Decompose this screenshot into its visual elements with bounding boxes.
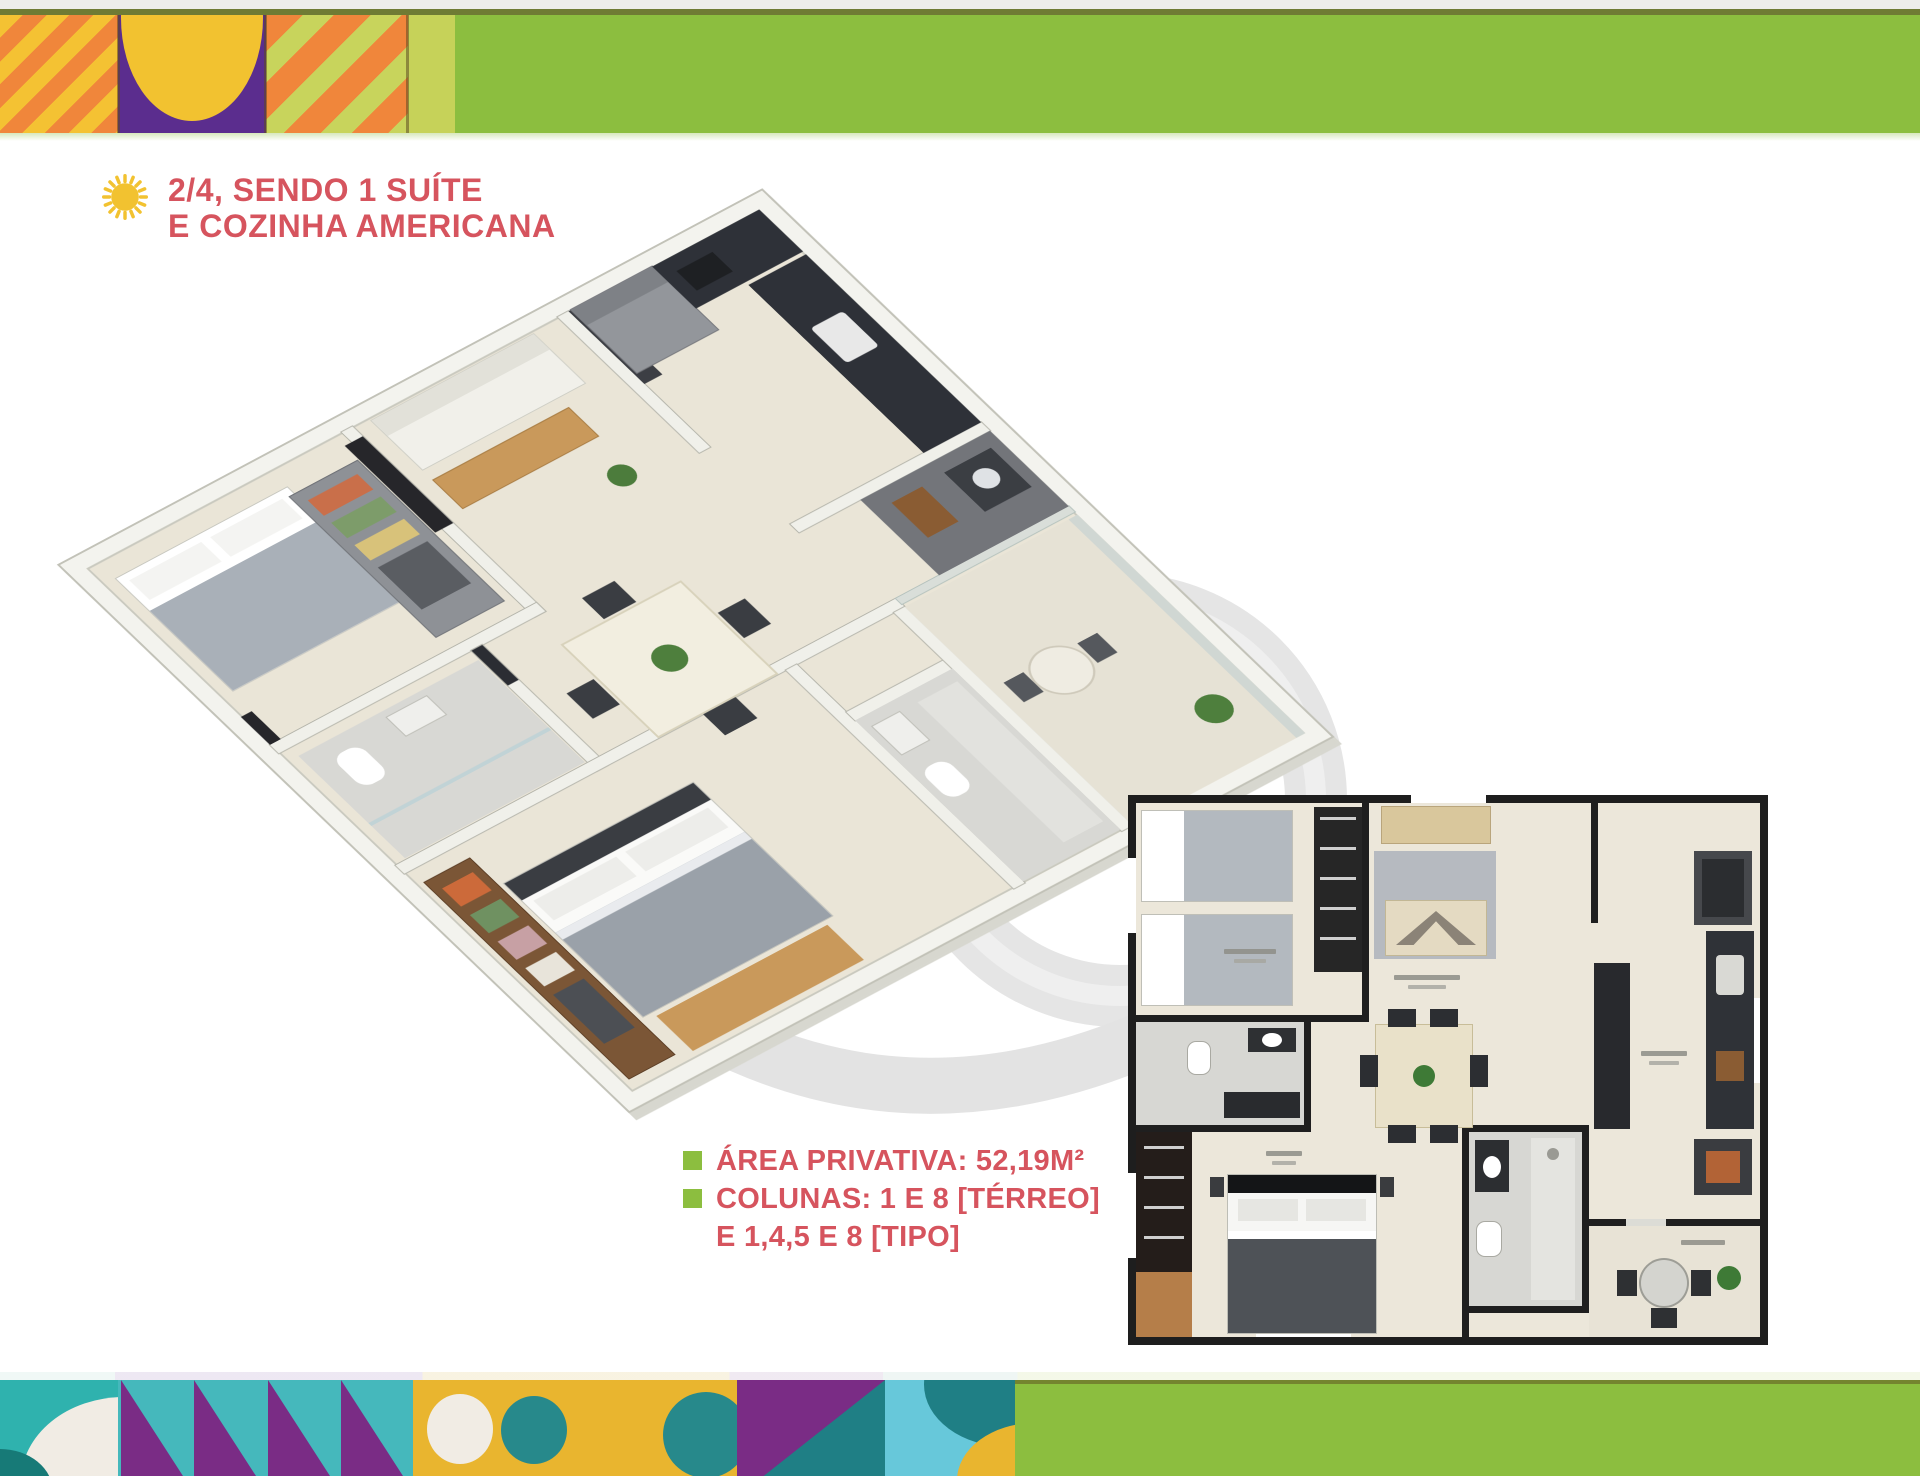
room-label-smudge	[1408, 985, 1446, 989]
spec-columns: COLUNAS: 1 E 8 [TÉRREO]	[683, 1180, 1100, 1218]
chair	[1388, 1125, 1416, 1143]
toilet	[331, 744, 390, 789]
plant	[1717, 1266, 1741, 1290]
floorplan-2d	[1128, 795, 1768, 1345]
spec-columns-line2: E 1,4,5 E 8 [TIPO]	[716, 1218, 1100, 1256]
tile-green-stripes-icon	[266, 15, 408, 133]
tile-purple-dome-icon	[118, 15, 266, 133]
wall	[1589, 1219, 1760, 1226]
window	[1411, 795, 1486, 803]
room-label-smudge	[1681, 1240, 1725, 1245]
top-decorative-banner	[0, 0, 1920, 133]
bed	[1142, 811, 1292, 901]
wood-shelf	[1136, 1272, 1192, 1337]
tile-chartreuse	[408, 15, 455, 133]
headline: 2/4, SENDO 1 SUÍTE E COZINHA AMERICANA	[102, 172, 556, 244]
headline-line2: E COZINHA AMERICANA	[168, 208, 556, 244]
chair	[1430, 1009, 1458, 1027]
fridge	[1694, 851, 1752, 925]
wood-shelf	[892, 486, 959, 537]
room-label-smudge	[1234, 959, 1266, 963]
bathroom-floor	[1136, 1022, 1304, 1125]
tile-purple-teal-diagonal-icon	[737, 1380, 885, 1476]
green-square-bullet	[683, 1189, 702, 1208]
washing-machine	[944, 448, 1032, 512]
wall	[1469, 1306, 1589, 1313]
window	[1128, 1173, 1136, 1258]
tile-teal-leaf-icon	[0, 1380, 118, 1476]
tile-gold-circles-icon	[413, 1380, 737, 1476]
tile-orange-stripes-icon	[0, 15, 118, 133]
tile-green-solid	[455, 15, 1920, 133]
suite-wardrobe	[1136, 1132, 1192, 1272]
balcony-floor	[1589, 1226, 1760, 1337]
pale-edge-strip	[0, 1372, 1920, 1380]
spec-columns-line1: COLUNAS: 1 E 8 [TÉRREO]	[716, 1180, 1100, 1218]
tile-green-solid	[1015, 1380, 1920, 1476]
chair	[1691, 1270, 1711, 1296]
wall	[1136, 1015, 1369, 1022]
room-label-smudge	[1394, 975, 1460, 980]
wardrobe	[1314, 807, 1362, 972]
spec-area: ÁREA PRIVATIVA: 52,19M²	[683, 1142, 1100, 1180]
sink-counter	[1248, 1028, 1296, 1052]
sun-icon	[102, 174, 148, 220]
pantry-cabinet	[1594, 963, 1630, 1129]
wall	[1582, 1125, 1589, 1313]
toilet	[1188, 1042, 1210, 1074]
window	[1128, 858, 1136, 933]
wall	[1136, 1125, 1311, 1132]
plant	[1413, 1065, 1435, 1087]
wall	[1591, 803, 1598, 923]
spec-area-text: ÁREA PRIVATIVA: 52,19M²	[716, 1142, 1084, 1180]
suite-bath-floor	[1469, 1132, 1582, 1306]
bed	[1142, 915, 1292, 1005]
suite-bed	[1228, 1175, 1376, 1333]
nightstand	[1210, 1177, 1224, 1197]
shower	[1531, 1138, 1575, 1300]
tile-purple-sails-icon	[118, 1380, 413, 1476]
flyer-page: 2/4, SENDO 1 SUÍTE E COZINHA AMERICANA	[0, 0, 1920, 1476]
room-label-smudge	[1266, 1151, 1302, 1156]
room-label-smudge	[1272, 1161, 1296, 1165]
bottom-decorative-banner	[0, 1380, 1920, 1476]
tile-cyan-petals-icon	[885, 1380, 1015, 1476]
oven	[1694, 1139, 1752, 1195]
sink-counter	[1475, 1140, 1509, 1192]
chair	[1651, 1308, 1677, 1328]
vanity	[1224, 1092, 1300, 1118]
chair	[1617, 1270, 1637, 1296]
sofa	[1382, 807, 1490, 843]
top-edge-strip	[0, 0, 1920, 9]
chair	[1470, 1055, 1488, 1087]
room-label-smudge	[1224, 949, 1276, 954]
plant	[1186, 689, 1241, 729]
toilet	[1477, 1222, 1501, 1256]
wall	[1469, 1125, 1589, 1132]
headline-line1: 2/4, SENDO 1 SUÍTE	[168, 172, 556, 208]
room-label-smudge	[1641, 1051, 1687, 1056]
spec-list: ÁREA PRIVATIVA: 52,19M² COLUNAS: 1 E 8 […	[683, 1142, 1100, 1256]
room-label-smudge	[1649, 1061, 1679, 1065]
door-gap	[1626, 1219, 1666, 1226]
wall	[1362, 803, 1369, 1018]
wall	[1304, 1022, 1311, 1132]
console-table	[1386, 901, 1486, 955]
green-square-bullet	[683, 1151, 702, 1170]
chair	[1388, 1009, 1416, 1027]
kitchen-counter	[1706, 931, 1754, 1129]
chair	[1360, 1055, 1378, 1087]
balcony-table	[1641, 1260, 1687, 1306]
wall	[1462, 1125, 1469, 1337]
nightstand	[1380, 1177, 1394, 1197]
chair	[1430, 1125, 1458, 1143]
